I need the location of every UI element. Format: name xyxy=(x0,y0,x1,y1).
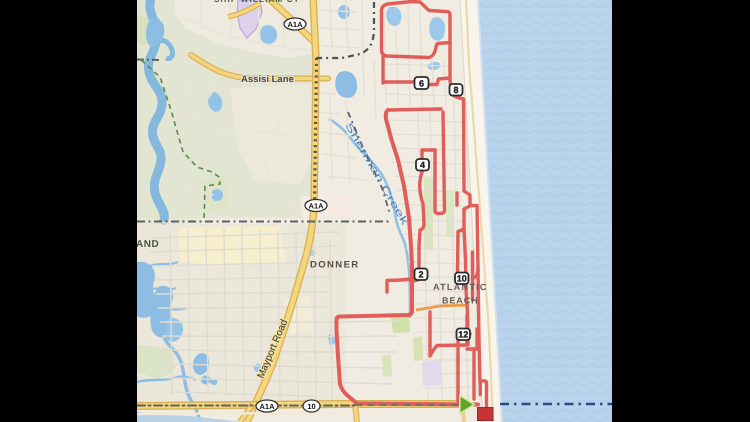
svg-text:4: 4 xyxy=(420,160,425,170)
svg-text:2: 2 xyxy=(418,270,423,280)
svg-text:10: 10 xyxy=(457,274,467,284)
svg-text:BEACH: BEACH xyxy=(442,296,479,306)
svg-text:A1A: A1A xyxy=(287,20,303,29)
svg-text:A1A: A1A xyxy=(259,402,275,411)
svg-text:6: 6 xyxy=(419,79,424,89)
svg-text:Assisi Lane: Assisi Lane xyxy=(241,74,294,85)
svg-text:A1A: A1A xyxy=(308,202,324,211)
svg-text:10: 10 xyxy=(307,402,315,411)
svg-text:DONNER: DONNER xyxy=(310,260,360,271)
svg-text:8: 8 xyxy=(453,85,458,95)
svg-text:AND: AND xyxy=(136,239,159,250)
svg-text:12: 12 xyxy=(458,330,468,340)
svg-text:SHIP WILLIAM CT: SHIP WILLIAM CT xyxy=(214,0,300,4)
